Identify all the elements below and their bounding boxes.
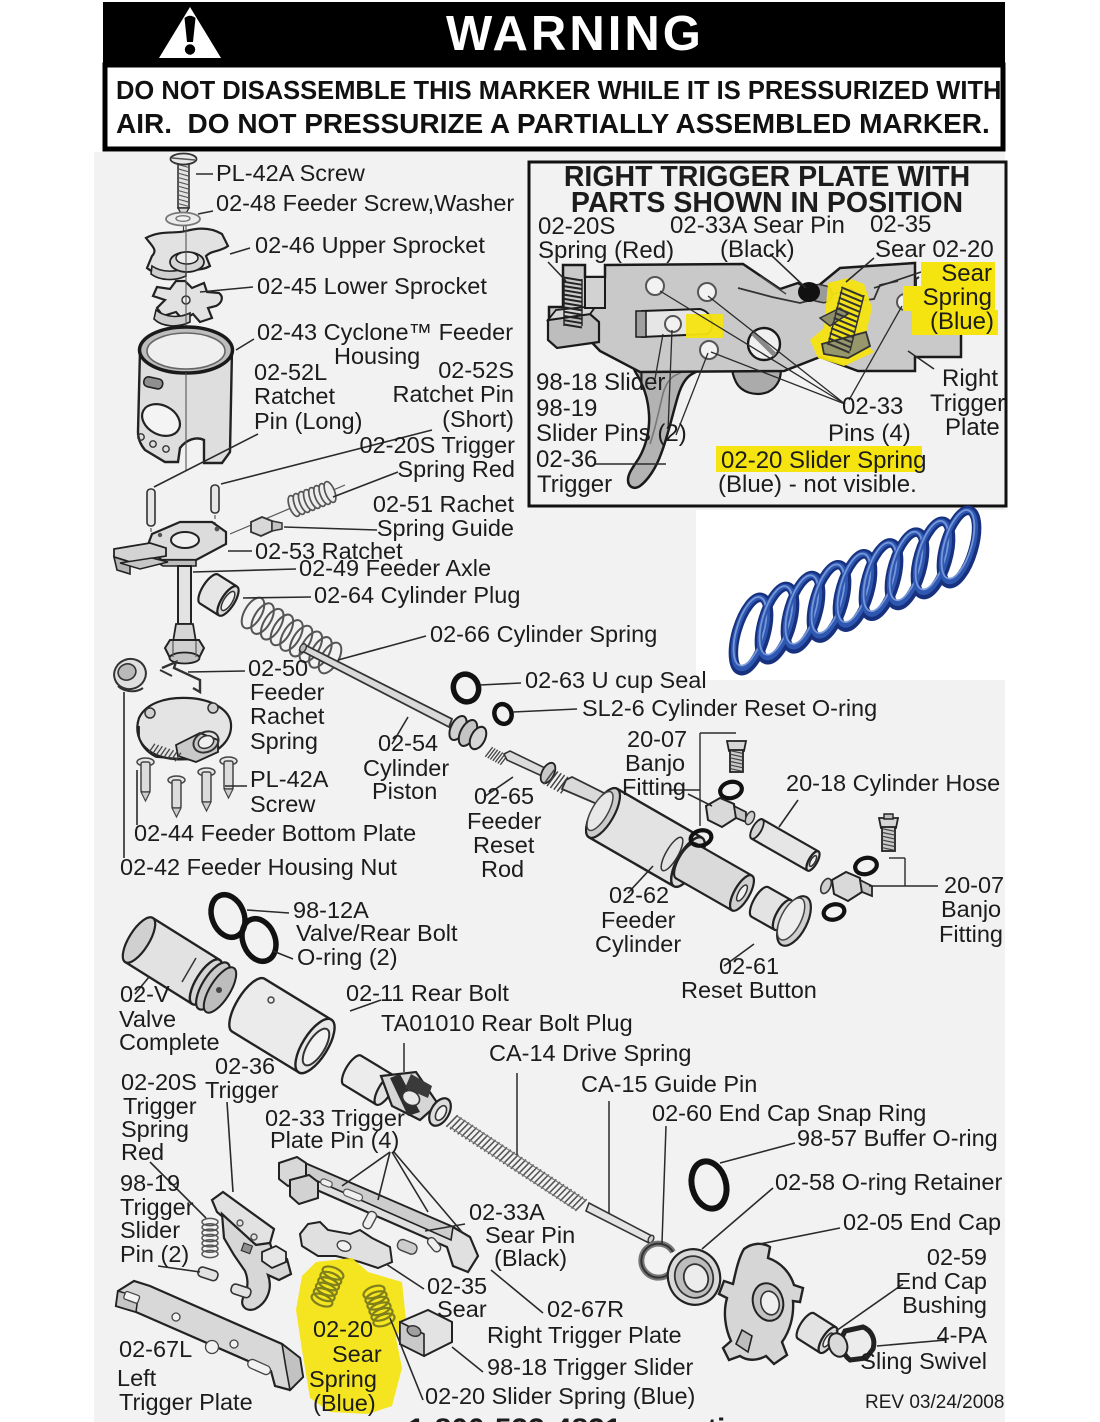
svg-text:02-11 Rear Bolt: 02-11 Rear Bolt: [346, 980, 509, 1006]
svg-text:Sear: Sear: [941, 260, 992, 287]
svg-text:(Blue) - not visible.: (Blue) - not visible.: [718, 471, 917, 498]
svg-text:Plate: Plate: [945, 414, 1000, 441]
svg-text:Complete: Complete: [119, 1029, 220, 1055]
svg-text:Fitting: Fitting: [939, 921, 1003, 947]
svg-text:Sear: Sear: [437, 1296, 487, 1322]
svg-text:02-54: 02-54: [378, 730, 438, 756]
svg-text:Banjo: Banjo: [625, 750, 685, 776]
svg-text:02-36: 02-36: [536, 446, 597, 473]
svg-text:02-36: 02-36: [215, 1053, 275, 1079]
svg-text:Trigger: Trigger: [930, 390, 1005, 417]
svg-text:02-44 Feeder Bottom Plate: 02-44 Feeder Bottom Plate: [134, 820, 416, 846]
svg-text:02-20S Trigger: 02-20S Trigger: [360, 432, 516, 458]
svg-text:Spring: Spring: [250, 728, 318, 754]
svg-text:Ratchet: Ratchet: [254, 383, 335, 409]
svg-text:02-62: 02-62: [609, 882, 669, 908]
svg-text:Piston: Piston: [372, 778, 437, 804]
svg-text:Valve/Rear Bolt: Valve/Rear Bolt: [296, 920, 458, 946]
svg-text:02-48 Feeder Screw,Washer: 02-48 Feeder Screw,Washer: [216, 190, 514, 216]
svg-text:Spring: Spring: [923, 284, 992, 311]
svg-text:Sear 02-20: Sear 02-20: [875, 236, 994, 263]
svg-text:02-45 Lower Sprocket: 02-45 Lower Sprocket: [257, 273, 487, 299]
svg-text:(Blue): (Blue): [930, 308, 994, 335]
svg-text:Screw: Screw: [250, 791, 316, 817]
svg-text:Rachet: Rachet: [250, 703, 325, 729]
svg-text:Feeder: Feeder: [467, 808, 542, 834]
svg-text:End Cap: End Cap: [896, 1268, 987, 1294]
svg-text:02-V: 02-V: [120, 981, 170, 1007]
svg-text:02-42 Feeder Housing Nut: 02-42 Feeder Housing Nut: [120, 854, 397, 880]
svg-text:Bushing: Bushing: [902, 1292, 987, 1318]
svg-text:(Blue): (Blue): [313, 1390, 376, 1416]
svg-text:Sling Swivel: Sling Swivel: [860, 1348, 987, 1374]
svg-text:Reset Button: Reset Button: [681, 977, 817, 1003]
svg-text:TA01010 Rear Bolt Plug: TA01010 Rear Bolt Plug: [381, 1010, 633, 1036]
svg-text:PL-42A: PL-42A: [250, 766, 329, 792]
svg-text:02-20S: 02-20S: [121, 1069, 197, 1095]
svg-text:Spring (Red): Spring (Red): [538, 237, 674, 264]
svg-text:Trigger: Trigger: [537, 471, 612, 498]
svg-text:Trigger Plate: Trigger Plate: [119, 1389, 253, 1415]
svg-text:Left: Left: [117, 1365, 157, 1391]
svg-text:02-20: 02-20: [313, 1316, 373, 1342]
svg-text:Housing: Housing: [334, 343, 420, 369]
svg-text:PL-42A Screw: PL-42A Screw: [216, 160, 366, 186]
svg-text:02-66 Cylinder Spring: 02-66 Cylinder Spring: [430, 621, 657, 647]
svg-text:02-46 Upper Sprocket: 02-46 Upper Sprocket: [255, 232, 485, 258]
svg-text:1-800-533-4831 www.tippmann.co: 1-800-533-4831 www.tippmann.com: [408, 1413, 912, 1422]
svg-text:02-65: 02-65: [474, 783, 534, 809]
svg-text:02-49 Feeder Axle: 02-49 Feeder Axle: [299, 555, 491, 581]
svg-text:Banjo: Banjo: [941, 896, 1001, 922]
svg-text:02-33: 02-33: [842, 393, 903, 420]
svg-text:02-61: 02-61: [719, 953, 779, 979]
svg-text:4-PA: 4-PA: [937, 1322, 988, 1348]
svg-text:02-59: 02-59: [927, 1244, 987, 1270]
svg-text:AIR. DO NOT PRESSURIZE A PART: AIR. DO NOT PRESSURIZE A PARTIALLY ASSEM…: [116, 108, 990, 139]
svg-text:98-57 Buffer O-ring: 98-57 Buffer O-ring: [797, 1125, 998, 1151]
svg-text:02-20 Slider Spring (Blue): 02-20 Slider Spring (Blue): [425, 1383, 695, 1409]
svg-text:02-67R: 02-67R: [547, 1296, 624, 1322]
svg-text:98-18 Slider: 98-18 Slider: [536, 369, 665, 396]
svg-text:02-20 Slider Spring: 02-20 Slider Spring: [721, 447, 926, 474]
svg-text:Slider Pins (2): Slider Pins (2): [536, 420, 687, 447]
svg-text:02-51 Rachet: 02-51 Rachet: [373, 491, 515, 517]
svg-text:Rod: Rod: [481, 856, 524, 882]
svg-text:Spring Red: Spring Red: [397, 456, 515, 482]
svg-text:Spring: Spring: [309, 1366, 377, 1392]
svg-text:Slider: Slider: [120, 1217, 180, 1243]
svg-text:REV 03/24/2008: REV 03/24/2008: [865, 1392, 1004, 1413]
svg-text:02-60 End Cap Snap Ring: 02-60 End Cap Snap Ring: [652, 1100, 926, 1126]
svg-text:Feeder: Feeder: [250, 679, 325, 705]
svg-text:Pin (Long): Pin (Long): [254, 408, 362, 434]
svg-text:O-ring (2): O-ring (2): [297, 944, 398, 970]
svg-text:SL2-6 Cylinder Reset O-ring: SL2-6 Cylinder Reset O-ring: [582, 695, 877, 721]
svg-text:WARNING: WARNING: [446, 7, 704, 61]
svg-text:98-19: 98-19: [536, 395, 597, 422]
svg-text:02-52L: 02-52L: [254, 359, 327, 385]
svg-text:02-43 Cyclone™ Feeder: 02-43 Cyclone™ Feeder: [257, 319, 513, 345]
svg-text:Red: Red: [121, 1139, 164, 1165]
svg-text:(Short): (Short): [442, 406, 514, 432]
svg-text:Feeder: Feeder: [601, 907, 676, 933]
svg-text:(Black): (Black): [494, 1245, 567, 1271]
svg-text:02-05 End Cap: 02-05 End Cap: [843, 1209, 1001, 1235]
svg-text:02-50: 02-50: [248, 655, 308, 681]
svg-text:CA-15 Guide Pin: CA-15 Guide Pin: [581, 1071, 757, 1097]
svg-text:98-18 Trigger Slider: 98-18 Trigger Slider: [487, 1354, 694, 1380]
svg-text:02-64 Cylinder Plug: 02-64 Cylinder Plug: [314, 582, 520, 608]
svg-text:02-20S: 02-20S: [538, 213, 615, 240]
svg-text:02-58 O-ring Retainer: 02-58 O-ring Retainer: [775, 1169, 1002, 1195]
svg-text:02-67L: 02-67L: [119, 1336, 192, 1362]
svg-text:02-63 U cup Seal: 02-63 U cup Seal: [525, 667, 707, 693]
svg-text:20-07: 20-07: [627, 726, 687, 752]
svg-text:Pins (4): Pins (4): [828, 420, 911, 447]
svg-text:Fitting: Fitting: [622, 774, 686, 800]
svg-text:Right: Right: [942, 365, 998, 392]
svg-text:20-07: 20-07: [944, 872, 1004, 898]
svg-text:Cylinder: Cylinder: [595, 931, 681, 957]
svg-text:Sear: Sear: [332, 1341, 382, 1367]
svg-text:Ratchet Pin: Ratchet Pin: [393, 381, 514, 407]
svg-text:(Black): (Black): [720, 236, 795, 263]
svg-text:Plate Pin (4): Plate Pin (4): [270, 1127, 399, 1153]
svg-text:02-52S: 02-52S: [438, 357, 514, 383]
svg-text:02-33A Sear Pin: 02-33A Sear Pin: [670, 212, 845, 239]
svg-text:Pin (2): Pin (2): [120, 1241, 189, 1267]
svg-text:02-35: 02-35: [870, 211, 931, 238]
svg-text:Right Trigger Plate: Right Trigger Plate: [487, 1322, 682, 1348]
svg-text:DO NOT DISASSEMBLE THIS MARKER: DO NOT DISASSEMBLE THIS MARKER WHILE IT …: [116, 77, 1001, 105]
svg-text:Reset: Reset: [473, 832, 535, 858]
svg-text:CA-14 Drive Spring: CA-14 Drive Spring: [489, 1040, 691, 1066]
svg-text:98-19: 98-19: [120, 1170, 180, 1196]
svg-text:20-18 Cylinder Hose: 20-18 Cylinder Hose: [786, 770, 1000, 796]
svg-text:Trigger: Trigger: [205, 1077, 279, 1103]
